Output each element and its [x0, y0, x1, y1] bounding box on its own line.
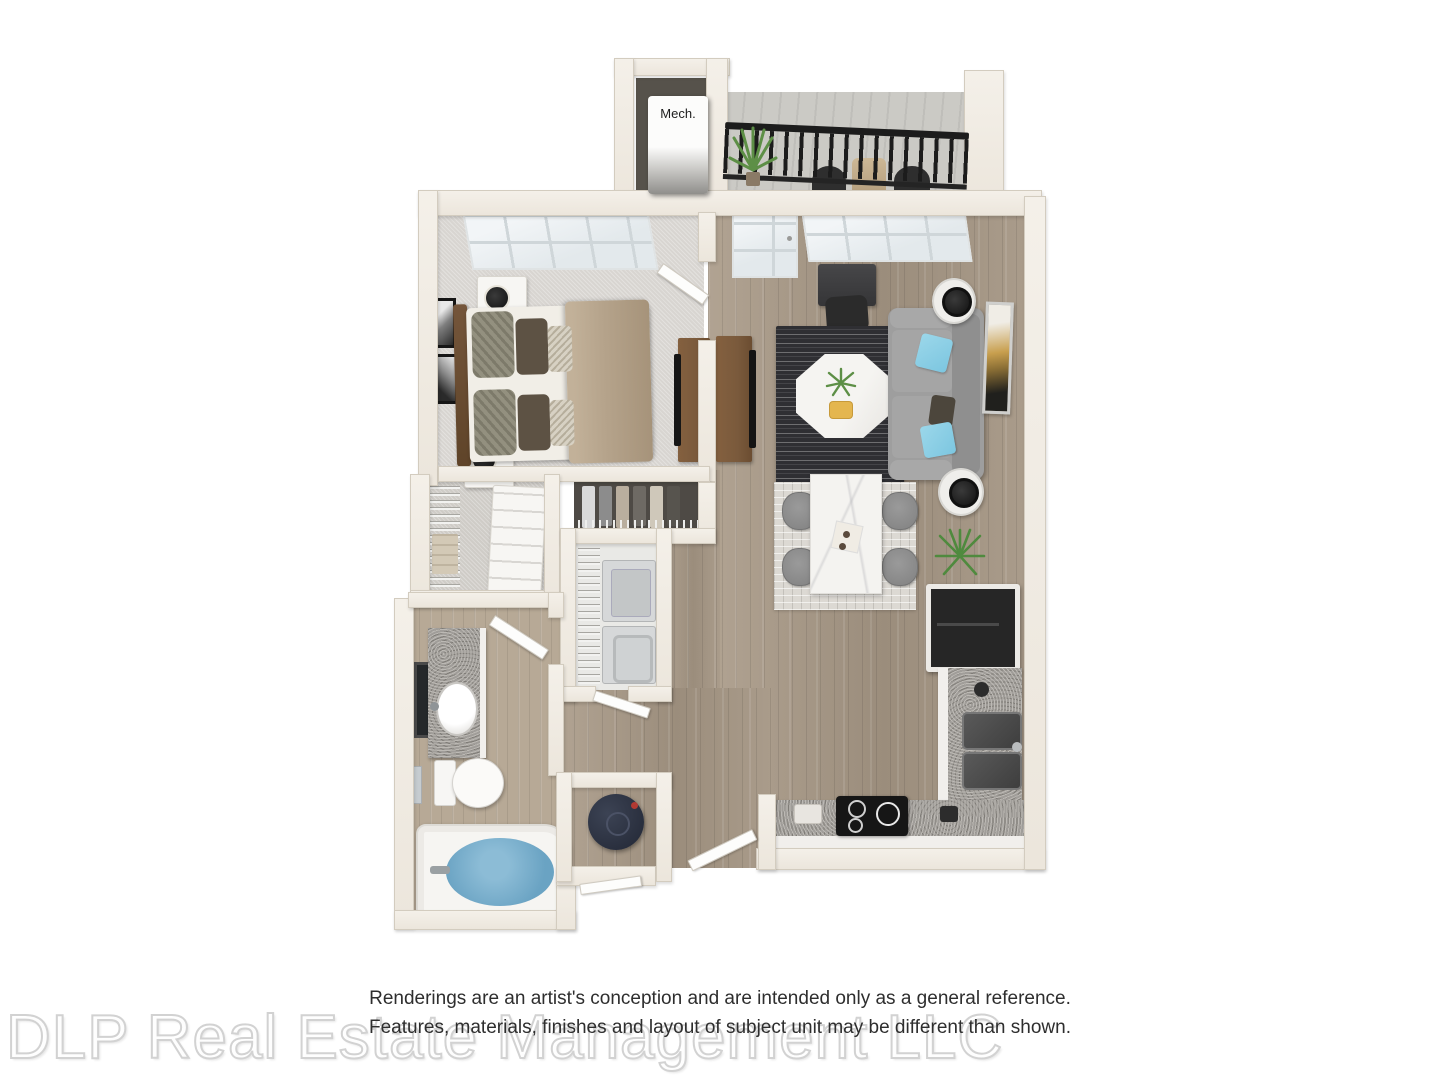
living-tv-console [716, 336, 752, 462]
sofa-pillow-blue-bottom [919, 421, 956, 458]
disclaimer-line-2: Features, materials, finishes and layout… [0, 1013, 1440, 1042]
closet-dresser [487, 485, 547, 598]
living-wall-art [982, 302, 1014, 415]
mech-closet-left-wall [614, 58, 634, 204]
end-table-lamp [942, 287, 972, 317]
coffee-table [796, 354, 892, 438]
end-table-top [932, 278, 976, 324]
unit-right-wall [1024, 196, 1046, 870]
kitchen-bottom-wall [756, 848, 1044, 870]
refrigerator [926, 584, 1020, 672]
laundry-right-wall [656, 528, 672, 702]
bed-pillow [473, 389, 517, 456]
unit-top-wall [418, 190, 1042, 216]
sofa-back [952, 314, 980, 474]
kitchen-counter-bottom [772, 800, 1024, 848]
water-heater-closet-right-wall [656, 772, 672, 882]
end-table-lamp [949, 478, 979, 508]
bedroom-bottom-wall [438, 466, 710, 482]
dining-table [810, 474, 882, 594]
coat-closet-clothes [578, 482, 698, 532]
end-table-bottom [938, 468, 984, 516]
laundry-top-wall [560, 528, 716, 544]
bathtub-water [446, 838, 554, 906]
laundry-bottom-wall-left [560, 686, 596, 702]
closet-towels [432, 534, 458, 574]
disclaimer-line-1: Renderings are an artist's conception an… [0, 984, 1440, 1013]
unit-left-wall-upper [418, 190, 438, 486]
bathtub [416, 824, 570, 922]
sofa [888, 308, 984, 480]
bedroom-divider-wall-lower [698, 340, 716, 482]
balcony-plant [726, 120, 778, 192]
bedroom-divider-wall-upper [698, 212, 716, 262]
bed-pillow [515, 318, 548, 375]
balcony-right-wall [964, 70, 1004, 204]
dining-chair [882, 492, 918, 530]
washer [602, 560, 656, 622]
floorplan-scene: Mech. [0, 0, 1440, 1080]
bathroom-left-wall [394, 598, 414, 928]
sink-faucet [1012, 742, 1022, 752]
bedroom-closet-right-wall [544, 474, 560, 606]
bathtub-faucet [430, 866, 450, 874]
coffee-table-tray [830, 402, 852, 418]
bathroom-right-wall [548, 664, 564, 776]
dining-chair [882, 548, 918, 586]
bed-duvet [565, 299, 653, 463]
bedroom-tv [674, 354, 681, 446]
utensil-crock [974, 682, 989, 697]
bathroom-bottom-wall [394, 910, 576, 930]
floorplan-page: Mech. [0, 0, 1440, 1080]
coffee-table-plant [824, 366, 858, 400]
cooktop [836, 796, 908, 836]
toilet [434, 758, 502, 808]
water-heater-closet-top-wall [556, 772, 672, 788]
disclaimer: Renderings are an artist's conception an… [0, 984, 1440, 1042]
door-handle [787, 236, 792, 241]
counter-appliance [940, 806, 958, 822]
water-heater-closet-left-wall [556, 772, 572, 882]
mech-label: Mech. [648, 96, 708, 121]
bed [453, 299, 653, 466]
kitchen-peninsula-wall [758, 794, 776, 870]
bed-pillow [471, 311, 515, 378]
bathroom-right-wall-stub [548, 592, 564, 618]
kitchen-sink [962, 752, 1022, 790]
vanity-sink [436, 682, 478, 736]
living-tv [749, 350, 756, 448]
vanity-faucet [430, 702, 439, 711]
bed-accent-pillow [549, 399, 574, 446]
water-heater-tank [588, 794, 644, 850]
bed-pillow [517, 394, 550, 451]
unit-left-wall-closet [410, 474, 430, 606]
water-heater-unit: Mech. [648, 96, 708, 194]
dryer [602, 626, 656, 684]
kitchen-corner-plant [932, 526, 988, 582]
bed-accent-pillow [548, 325, 573, 372]
bathroom-top-wall [408, 592, 560, 608]
counter-basket [794, 804, 822, 824]
bathroom-vanity [428, 628, 486, 758]
laundry-bottom-wall-right [628, 686, 672, 702]
laundry-wire-shelf [578, 548, 600, 684]
